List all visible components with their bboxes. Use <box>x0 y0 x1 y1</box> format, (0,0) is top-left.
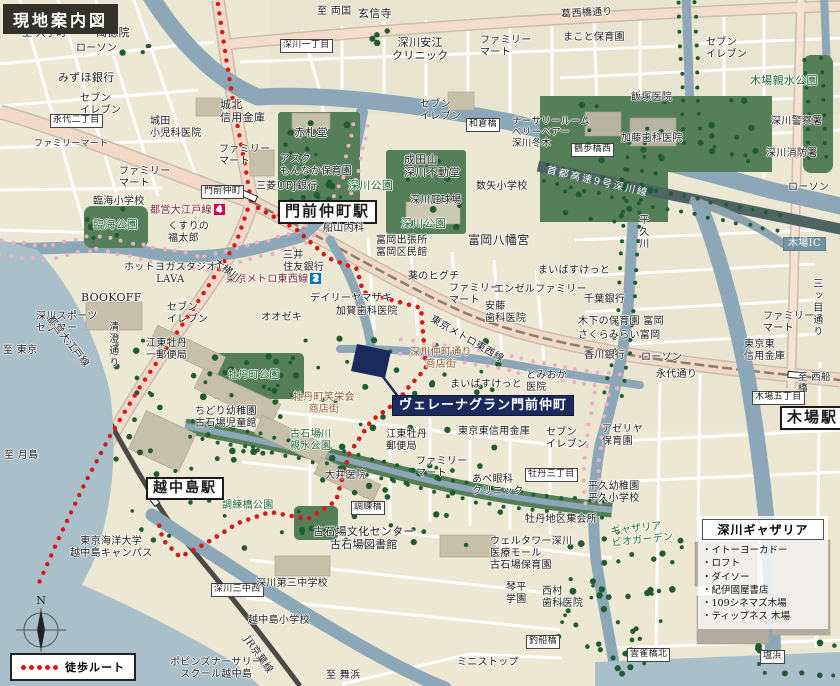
map-label: 永代二丁目 <box>50 114 103 128</box>
map-label: セブン イレブン <box>546 427 587 451</box>
map-label: 都営大江戸線4 <box>150 204 225 217</box>
map-label: 富岡八幡宮 <box>468 233 530 247</box>
walk-route-legend-label: 徒歩ルート <box>65 659 125 675</box>
map-label: 平久川 <box>636 214 648 250</box>
map-label: アゼリヤ 保育園 <box>602 424 643 448</box>
map-label: エンゼルファミリー <box>494 284 587 296</box>
gatharia-item: ・ティップネス 木場 <box>702 610 824 623</box>
map-label: 江東牡丹 一郵便局 <box>146 338 187 362</box>
map-label: 至 東京 <box>3 345 37 357</box>
map-label: ホットヨガスタジオ LAVA <box>124 262 217 286</box>
map-label: BOOKOFF <box>81 292 142 305</box>
kiba-station-label: 木場駅 <box>780 406 840 430</box>
map-label: 深川仲町通り 商店街 <box>410 347 472 371</box>
map-label: 木場五丁目 <box>752 391 805 405</box>
map-label: 加賀歯科医院 <box>336 306 398 318</box>
map-label: 深川一丁目 <box>280 39 333 53</box>
map-label: 牡丹町笑栄会 商店街 <box>293 392 355 416</box>
map-label: ファミリー マート <box>763 311 815 335</box>
legend-dot <box>21 665 26 670</box>
compass-needle <box>37 609 45 651</box>
map-label: 東京海洋大学 越中島キャンパス <box>70 536 152 560</box>
map-label: ウェルタワー深川 医療モール 古石場保育園 <box>490 536 572 571</box>
map-label: セブン イレブン <box>167 302 208 326</box>
map-label: みずほ銀行 <box>58 72 115 85</box>
map-label: ポピンズナーサリー スクール越中島 <box>170 657 262 681</box>
map-label: さくらみらい富岡 <box>578 330 660 342</box>
map-label: 薬のヒグチ <box>408 271 460 283</box>
map-label: 平久幼稚園 平久小学校 <box>588 481 640 505</box>
map-label: 越中島小学校 <box>248 615 310 627</box>
map-label: ファミリー マート <box>416 456 468 480</box>
gatharia-info-panel: 深川ギャザリア ・イトーヨーカドー・ロフト・ダイソー・紀伊國屋書店・109シネマ… <box>698 516 828 629</box>
map-label: 永代通り <box>656 369 697 381</box>
map-label: 調練橋公園 <box>222 500 274 512</box>
map-label: 大井医院 <box>325 470 366 482</box>
map-label: 深川警察署 <box>771 116 823 128</box>
map-label: くすりの 福太郎 <box>168 221 209 245</box>
map-label: 臨海小学校 <box>93 196 145 208</box>
map-label: ファミリーマート <box>34 139 108 150</box>
map-label: 雲雀橋北 <box>627 648 670 662</box>
map-label: ナーサリールーム ベリーベアー 深川冬木 <box>512 116 590 150</box>
map-label: 三菱UFJ銀行 <box>256 181 317 193</box>
line-number-badge: 2 <box>310 273 321 284</box>
map-label: ローソン <box>788 182 829 194</box>
gatharia-item: ・109シネマズ木場 <box>702 597 824 610</box>
map-label: 至 月島 <box>4 450 38 462</box>
map-label: 江東牡丹 郵便局 <box>386 429 427 453</box>
map-label: 調練橋 <box>351 501 385 515</box>
map-label: ファミリー マート <box>119 166 171 190</box>
map-label: まいばすけっと <box>538 265 610 277</box>
map-label: ちどり幼稚園 古石場児童館 <box>195 406 257 430</box>
map-label: 釣船橋 <box>526 635 560 649</box>
map-label: 至 両国 <box>317 6 351 18</box>
map-label: 深川庭球場 <box>410 195 462 207</box>
map-label: 古石場川 親水公園 <box>290 429 331 453</box>
legend-dot <box>45 665 50 670</box>
map-label: 古石場文化センター 古石場図書館 <box>313 526 415 552</box>
map-label: 城北 信用金庫 <box>220 99 265 125</box>
map-label: 富岡出張所 富岡区民館 <box>376 235 428 259</box>
etchujima-station-label: 越中島駅 <box>146 477 224 500</box>
legend-dot <box>53 665 58 670</box>
map-label: 深川第三中学校 <box>256 578 328 590</box>
gatharia-item: ・ロフト <box>702 557 824 570</box>
map-label: まこと保育園 <box>563 32 625 44</box>
map-label: 三井 住友銀行 <box>283 250 324 274</box>
kiba-ic-label: 木場IC <box>783 237 826 251</box>
map-label: 東京東 信用金庫 <box>744 339 785 363</box>
map-label: デイリーヤマザキ <box>310 293 392 305</box>
walk-route-dots-sample <box>21 665 58 670</box>
map-label: 香川銀行 <box>584 350 625 362</box>
map-label: アスク もんなか保育園 <box>280 154 352 178</box>
map-label: 数矢小学校 <box>476 181 528 193</box>
map-label: ファミリー マート <box>480 35 532 59</box>
walk-route-legend: 徒歩ルート <box>10 653 136 681</box>
map-label: とみおか 医院 <box>526 370 567 394</box>
map-label: 深川公園 <box>348 180 393 193</box>
map-label: 牡丹三丁目 <box>525 468 578 482</box>
map-title-badge: 現地案内図 <box>3 4 118 34</box>
map-label: 飯塚医院 <box>631 92 672 104</box>
legend-dot <box>37 665 42 670</box>
map-label: ローソン <box>641 352 682 364</box>
monzen-nakacho-station-label: 門前仲町駅 <box>278 200 377 224</box>
map-label: 門前仲町 <box>201 185 244 199</box>
map-label: 船山内科 <box>323 223 364 235</box>
gatharia-item: ・紀伊國屋書店 <box>702 584 824 597</box>
map-label: 深川安江 クリニック <box>392 37 449 63</box>
map-label: あべ眼科 クリニック <box>472 474 524 498</box>
map-label: 臨海公園 <box>93 219 138 232</box>
map-label: セブン イレブン <box>420 99 461 123</box>
map-label: 東京東信用金庫 <box>458 426 530 438</box>
map-label: まいばすけっと <box>450 379 522 391</box>
gatharia-item: ・ダイソー <box>702 571 824 584</box>
map-label: 塩浜 <box>760 650 785 664</box>
map-label: 城田 小児科医院 <box>150 116 202 140</box>
map-label: ローソン <box>76 43 117 55</box>
map-label: 深川消防署 <box>766 148 818 160</box>
property-name-label: ヴェレーナグラン門前仲町 <box>392 395 574 416</box>
map-label: 至 舞浜 <box>326 670 360 682</box>
map-label: 成田山 深川不動堂 <box>404 154 461 180</box>
map-label: 牡丹地区集会所 <box>525 514 597 526</box>
map-label: 和倉橋 <box>466 118 500 132</box>
map-label: 玄信寺 <box>358 8 392 21</box>
gatharia-panel-title: 深川ギャザリア <box>702 519 824 540</box>
compass-rose: N <box>8 592 74 658</box>
map-label: 千葉銀行 <box>584 294 625 306</box>
map-label: オオゼキ <box>261 312 302 324</box>
gatharia-item-list: ・イトーヨーカドー・ロフト・ダイソー・紀伊國屋書店・109シネマズ木場・ティップ… <box>702 544 824 624</box>
compass-north-label: N <box>36 594 46 607</box>
map-label: 清澄通り <box>106 321 118 369</box>
map-label: 深川公園 <box>401 218 446 231</box>
gatharia-item: ・イトーヨーカドー <box>702 544 824 557</box>
map-label: 琴平 学園 <box>506 582 527 606</box>
line-number-badge: 4 <box>214 204 225 215</box>
map-label: 赤札堂 <box>294 127 328 140</box>
map-label: ファミリー マート <box>219 144 271 168</box>
map-label: ミニストップ <box>457 657 519 669</box>
site-guide-map: { "title_badge": "現地案内図", "compass_label… <box>0 0 840 686</box>
map-label: 牡丹町公園 <box>228 370 280 382</box>
map-label: 西村 歯科医院 <box>542 586 583 610</box>
map-label: 木場親水公園 <box>750 75 818 88</box>
map-label: 木下の保育園 富岡 <box>578 316 664 328</box>
legend-dot <box>29 665 34 670</box>
map-label: セブン イレブン <box>706 37 747 61</box>
map-label: 加藤歯科医院 <box>621 133 683 145</box>
map-label: 安藤 歯科医院 <box>485 301 526 325</box>
